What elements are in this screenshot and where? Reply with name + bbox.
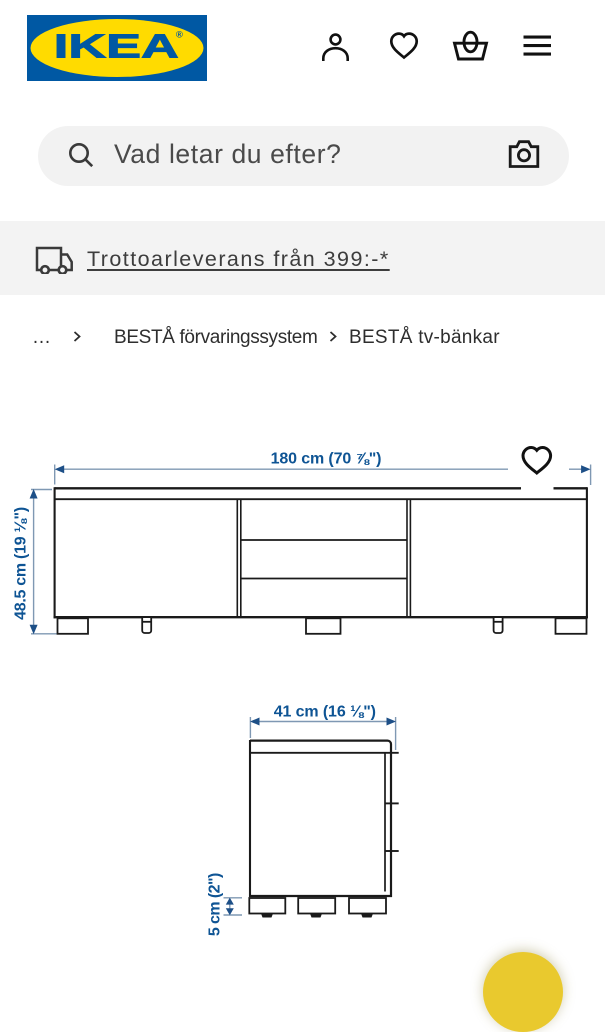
svg-text:IKEA: IKEA <box>54 29 179 66</box>
svg-text:®: ® <box>176 30 183 41</box>
svg-text:5 cm (2"): 5 cm (2") <box>207 873 224 936</box>
svg-text:41 cm (16 ⅛"): 41 cm (16 ⅛") <box>274 703 376 720</box>
svg-text:180 cm (70 ⅞"): 180 cm (70 ⅞") <box>271 450 382 467</box>
svg-text:48.5 cm (19 ⅛"): 48.5 cm (19 ⅛") <box>12 507 29 620</box>
